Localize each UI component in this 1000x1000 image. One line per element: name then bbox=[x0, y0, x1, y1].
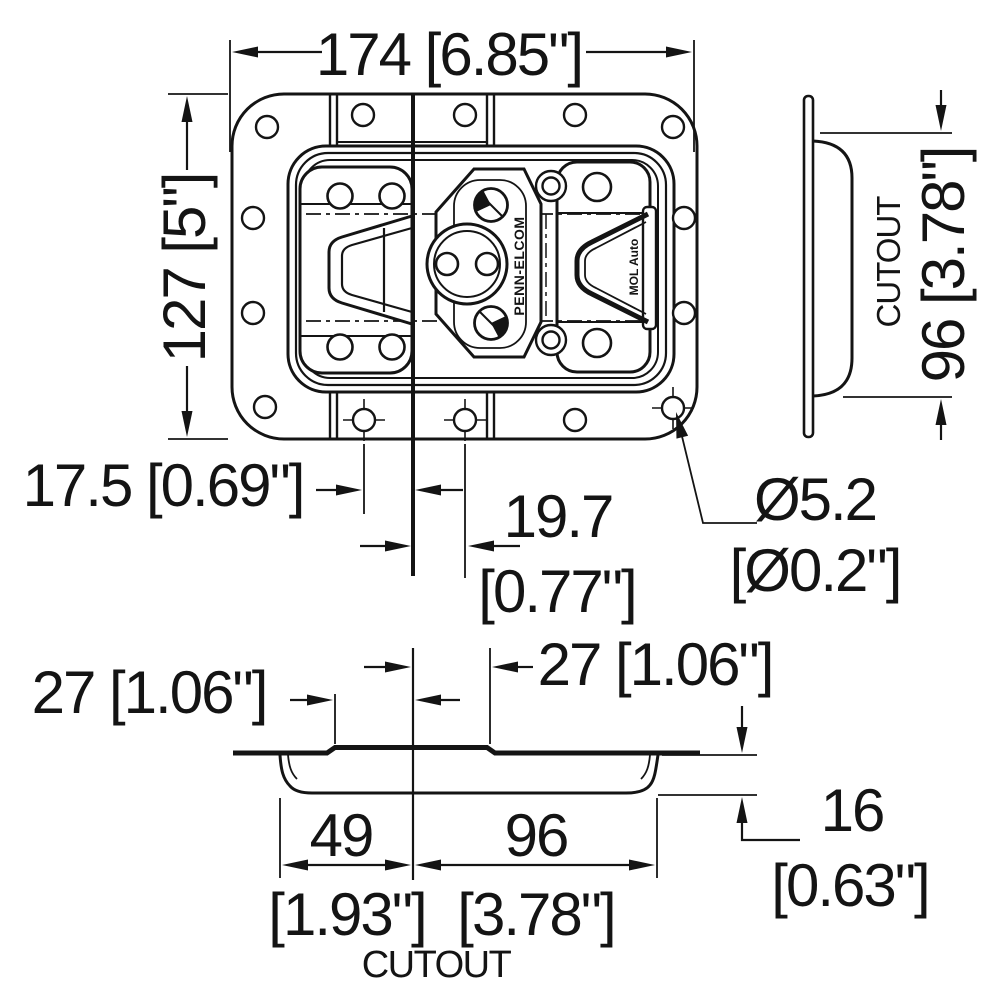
bale-anchor-strip bbox=[643, 207, 656, 329]
dim-lip-right-label: 27 [1.06"] bbox=[538, 631, 773, 698]
section-pan-profile bbox=[280, 755, 658, 793]
drawing-page: PENN-ELCOM MOL Auto 174 [6.85"] bbox=[0, 0, 1000, 1000]
dim-lip-right: 27 [1.06"] bbox=[364, 631, 772, 744]
side-panel-flange bbox=[804, 96, 813, 437]
dim-lip-left-label: 27 [1.06"] bbox=[32, 659, 267, 726]
dim-depth-mm: 16 bbox=[821, 777, 884, 844]
technical-drawing: PENN-ELCOM MOL Auto 174 [6.85"] bbox=[0, 0, 1000, 1000]
side-dish-bulge bbox=[813, 141, 852, 396]
section-lid-line bbox=[233, 748, 700, 754]
section-cutout-label: CUTOUT bbox=[362, 944, 512, 986]
dim-cutout-left-mm: 49 bbox=[310, 802, 373, 869]
side-cutout-height-label: 96 [3.78"] bbox=[910, 148, 977, 383]
dim-rivet-offset-right-in: [0.77"] bbox=[478, 558, 635, 625]
latch-model-text: MOL Auto bbox=[627, 239, 641, 296]
dim-height-label: 127 [5"] bbox=[151, 174, 218, 363]
dim-rivet-offset-left: 17.5 [0.69"] bbox=[23, 444, 463, 519]
side-cutout-label: CUTOUT bbox=[870, 196, 907, 328]
latch-brand-text: PENN-ELCOM bbox=[511, 216, 527, 315]
dim-cutout-left-in: [1.93"] bbox=[268, 881, 425, 948]
screw-bottom bbox=[475, 307, 508, 340]
dim-hole-dia-mm: Ø5.2 bbox=[754, 466, 876, 533]
dim-rivet-offset-left-label: 17.5 [0.69"] bbox=[23, 452, 304, 519]
dim-cutout-right-mm: 96 bbox=[505, 802, 568, 869]
latch-mechanism: PENN-ELCOM MOL Auto bbox=[300, 162, 656, 373]
side-view: CUTOUT 96 [3.78"] bbox=[804, 90, 977, 440]
dim-rivet-offset-right-mm: 19.7 bbox=[504, 483, 613, 550]
dim-lip-left: 27 [1.06"] bbox=[32, 659, 460, 744]
dim-depth: 16 [0.63"] bbox=[658, 706, 929, 919]
dim-depth-in: [0.63"] bbox=[771, 852, 928, 919]
dim-height: 127 [5"] bbox=[151, 94, 228, 439]
screw-top bbox=[474, 189, 507, 222]
dim-cutout-widths: 49 96 [1.93"] [3.78"] bbox=[268, 798, 657, 948]
dim-hole-diameter: Ø5.2 [Ø0.2"] bbox=[670, 411, 900, 604]
dim-width-label: 174 [6.85"] bbox=[316, 21, 582, 88]
dim-hole-dia-in: [Ø0.2"] bbox=[730, 537, 901, 604]
dim-rivet-offset-right: 19.7 [0.77"] bbox=[360, 444, 636, 625]
section-view: 27 [1.06"] 27 [1.06"] 49 96 [1.93"] [3.7… bbox=[32, 631, 929, 986]
dim-cutout-right-in: [3.78"] bbox=[457, 881, 614, 948]
